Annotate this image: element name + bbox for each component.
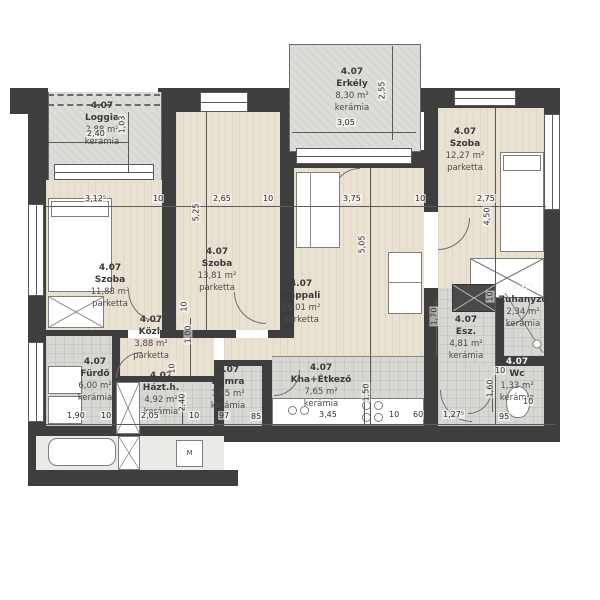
room-area: 1,85 m² [198, 388, 258, 400]
room-floor: kerámia [306, 102, 398, 114]
window [296, 148, 412, 164]
dimension-label: 4,50 [482, 207, 491, 227]
dimension-line [46, 206, 546, 207]
dimension-label: 1,27⁵ [442, 410, 465, 419]
room-unit: 4.07 [174, 246, 260, 258]
dimension-label: 2,55 [377, 81, 386, 101]
dimension-label: 10 [494, 366, 506, 375]
room-label-nappali: 4.07 Nappali 16,01 m² parketta [258, 278, 344, 326]
wall [262, 360, 272, 430]
dimension-label: 10 [180, 300, 189, 312]
room-unit: 4.07 [486, 282, 560, 294]
room-floor: kerámia [486, 392, 548, 404]
room-area: 4,92 m² [124, 394, 198, 406]
window [454, 90, 516, 106]
dimension-label: 2,40 [177, 393, 186, 413]
room-name: Loggia [58, 112, 146, 124]
room-area: 11,88 m² [66, 286, 154, 298]
room-label-kamra: 4.07 Kamra 1,85 m² kerámia [198, 364, 258, 412]
room-label-kha-etkezo: 4.07 Kha+Étkező 7,65 m² kerámia [276, 362, 366, 410]
room-area: 6,00 m² [56, 380, 134, 392]
dimension-label: 1,00 [183, 325, 192, 345]
dimension-label: 3,75 [342, 194, 362, 203]
dimension-label: 2,65 [212, 194, 232, 203]
room-unit: 4.07 [66, 262, 154, 274]
dimension-label: 10 [152, 194, 164, 203]
sofa-line [310, 172, 311, 248]
wall [28, 470, 238, 486]
dimension-label: 1,90 [66, 411, 86, 420]
dimension-label: 10 [522, 397, 534, 406]
wall [222, 426, 560, 442]
room-label-zuhanyzo: 4.07 Zuhanyzó 2,34 m² kerámia [486, 282, 560, 330]
dimension-label: 10 [100, 411, 112, 420]
room-area: 12,27 m² [420, 150, 510, 162]
cooktop-burner [374, 401, 383, 410]
room-label-kozl: 4.07 Közl. 3,88 m² parketta [114, 314, 188, 362]
room-name: Házt.h. [124, 382, 198, 394]
dimension-label: 2,05 [140, 411, 160, 420]
table-line [388, 282, 422, 283]
room-name: Nappali [258, 290, 344, 302]
room-label-loggia: 4.07 Loggia 2,88 m² kerámia [58, 100, 146, 148]
pillow [51, 201, 109, 217]
room-floor: parketta [420, 162, 510, 174]
dimension-label: 95 [498, 412, 510, 421]
room-area: 3,88 m² [114, 338, 188, 350]
room-unit: 4.07 [258, 278, 344, 290]
room-unit: 4.07 [276, 362, 366, 374]
room-label-szoba-left: 4.07 Szoba 11,88 m² parketta [66, 262, 154, 310]
dimension-label: 3,12⁵ [84, 194, 107, 203]
window [200, 92, 248, 112]
duct [118, 436, 140, 470]
room-area: 13,81 m² [174, 270, 260, 282]
dimension-label: 10 [188, 411, 200, 420]
window [28, 342, 44, 422]
room-unit: 4.07 [306, 66, 398, 78]
room-floor: kerámia [486, 318, 560, 330]
room-label-hazth: 4.07 Házt.h. 4,92 m² kerámia [124, 370, 198, 418]
dimension-label: 10 [262, 194, 274, 203]
room-name: Zuhanyzó [486, 294, 560, 306]
window [28, 204, 44, 296]
room-unit: 4.07 [420, 126, 510, 138]
room-unit: 4.07 [198, 364, 258, 376]
cooktop-burner [374, 413, 383, 422]
loggia-open-edge [48, 94, 160, 96]
room-unit: 4.07 [124, 370, 198, 382]
room-floor: kerámia [276, 398, 366, 410]
room-floor: kerámia [124, 406, 198, 418]
room-label-szoba-right: 4.07 Szoba 12,27 m² parketta [420, 126, 510, 174]
dimension-line [46, 424, 556, 425]
floor-plan: M 3,12⁵102,65103,75102,755,255,054,502,4… [0, 0, 600, 600]
room-area: 2,34 m² [486, 306, 560, 318]
open-plan-divider [272, 356, 424, 357]
room-floor: parketta [258, 314, 344, 326]
room-name: Közl. [114, 326, 188, 338]
dimension-label: 10 [486, 290, 495, 302]
dimension-label: 1,50 [361, 383, 370, 403]
room-name: Szoba [66, 274, 154, 286]
room-area: 4,81 m² [430, 338, 502, 350]
room-floor: parketta [174, 282, 260, 294]
room-name: Kha+Étkező [276, 374, 366, 386]
dimension-label: 85 [250, 412, 262, 421]
room-name: Kamra [198, 376, 258, 388]
bathtub [48, 438, 116, 466]
room-unit: 4.07 [58, 100, 146, 112]
dimension-label: 3,45 [318, 410, 338, 419]
room-label-szoba-middle: 4.07 Szoba 13,81 m² parketta [174, 246, 260, 294]
dimension-label: 97 [218, 411, 230, 420]
dimension-label: 1,70 [429, 307, 438, 327]
dimension-line [292, 132, 416, 133]
dimension-label: 1,60 [485, 379, 494, 399]
dimension-label: 1,03 [117, 115, 126, 135]
room-name: Szoba [174, 258, 260, 270]
room-area: 16,01 m² [258, 302, 344, 314]
room-name: Fürdő [56, 368, 134, 380]
dimension-label: 2,40 [86, 129, 106, 138]
window [544, 114, 560, 210]
room-area: 1,33 m² [486, 380, 548, 392]
dining-table [388, 252, 422, 314]
dimension-label: 5,25 [191, 203, 200, 223]
dimension-label: 5,05 [357, 235, 366, 255]
dimension-label: 60 [412, 410, 424, 419]
room-floor: parketta [66, 298, 154, 310]
dimension-label: 2,75 [476, 194, 496, 203]
window [54, 164, 154, 180]
dimension-label: 10 [168, 362, 177, 374]
sofa [296, 172, 340, 248]
washing-machine-label: M [176, 449, 203, 457]
room-area: 7,65 m² [276, 386, 366, 398]
wall [162, 112, 176, 336]
wall [268, 330, 294, 338]
room-unit: 4.07 [114, 314, 188, 326]
room-name: Szoba [420, 138, 510, 150]
dimension-line [206, 112, 207, 330]
room-label-furdo: 4.07 Fürdő 6,00 m² kerámia [56, 356, 134, 404]
room-floor: kerámia [56, 392, 134, 404]
dimension-label: 3,05 [336, 118, 356, 127]
dimension-label: 10 [414, 194, 426, 203]
room-unit: 4.07 [56, 356, 134, 368]
dimension-label: 10 [388, 410, 400, 419]
room-label-wc: 4.07 Wc 1,33 m² kerámia [486, 356, 548, 404]
